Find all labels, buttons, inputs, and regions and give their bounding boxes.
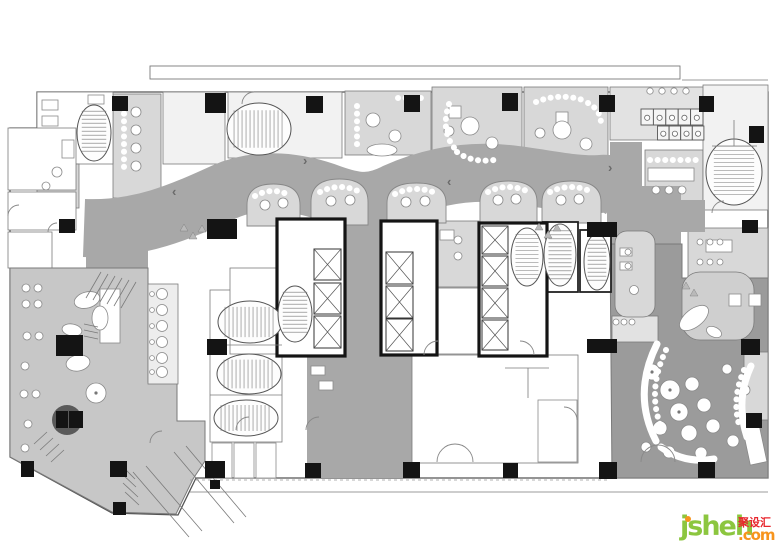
column [587,222,617,237]
toilet-fixture [694,115,699,120]
toilet-fixture [661,131,666,136]
table-round [260,200,270,210]
watermark-dot-icon [685,516,691,522]
column [113,502,126,515]
oval-stair [706,139,762,205]
table-round [326,196,336,206]
floor-plan-canvas: ‹››‹ [0,0,780,551]
table-round [32,390,40,398]
table-round [157,305,168,316]
oval-stair [278,286,312,342]
roof-setback-line [150,66,680,79]
column [502,93,518,111]
column [503,463,518,478]
table-round [34,284,42,292]
column [404,95,420,112]
table-round [22,284,30,292]
table-round [366,113,380,127]
table-round [454,236,462,244]
room [8,128,76,190]
table-round [461,117,479,135]
table-round [157,353,168,364]
toilet-fixture [669,115,674,120]
table-round [278,198,288,208]
table-round [629,319,635,325]
toilet-fixture [684,131,689,136]
column [21,461,34,477]
toilet-fixture [696,131,701,136]
table-round [150,324,155,329]
furniture [234,443,254,478]
table-round [157,337,168,348]
column [746,413,762,428]
table-round [150,356,155,361]
table-round [580,138,592,150]
room [615,231,655,317]
table-round [678,186,686,194]
column [599,462,617,479]
column [59,219,75,233]
table-round [131,143,141,153]
table-round [671,88,677,94]
room [612,316,658,342]
column [205,461,225,478]
column [741,339,760,355]
oval-stair [77,105,111,161]
table-round [681,425,697,441]
table-round [389,130,401,142]
table-round [131,161,141,171]
table-round [685,377,699,391]
column [112,96,128,111]
table-round [697,398,711,412]
oval-stair [584,234,610,290]
table-round [707,239,713,245]
oval-stair [218,301,282,343]
table-round [556,195,566,205]
table-round [697,259,703,265]
table-round [150,292,155,297]
table-round [35,332,43,340]
direction-arrow: ‹ [447,174,451,189]
table-round [157,321,168,332]
direction-arrow: › [303,153,307,168]
table-round [652,186,660,194]
column [306,96,323,113]
table-round [131,125,141,135]
room [8,232,52,268]
column [698,462,715,478]
table-round [157,289,168,300]
table-round [717,259,723,265]
table-round [52,167,62,177]
column [305,463,321,478]
oval-stair [214,400,278,436]
direction-arrow: ‹ [172,184,176,199]
table-round [420,196,430,206]
watermark-logo: jsheh 聚设汇 .com [680,512,780,550]
direction-arrow: › [608,160,612,175]
room [435,288,479,354]
table-round [625,263,631,269]
column [599,95,615,112]
furniture [319,381,333,390]
column [110,461,127,477]
table-round [157,367,168,378]
table-round [683,88,689,94]
table-round [42,182,50,190]
column [403,462,420,478]
room [688,228,768,278]
column [749,126,764,143]
table-round [630,286,639,295]
table-round [659,88,665,94]
table-round [722,364,732,374]
table-round [613,319,619,325]
table-round [345,195,355,205]
table-round [150,340,155,345]
furniture [449,106,461,118]
furniture [256,443,276,478]
table-round [150,370,155,375]
watermark-suffix-text: .com [738,526,775,544]
corridor-area [607,200,705,232]
table-round [553,121,571,139]
column [207,219,237,239]
table-round [493,195,503,205]
furniture [729,294,741,306]
toilet-fixture [672,131,677,136]
table-round [24,420,32,428]
table-oval [367,144,397,156]
column [69,411,83,428]
column [587,339,617,353]
table-round [511,194,521,204]
table-round [697,239,703,245]
oval-stair [217,354,281,394]
table-round [486,137,498,149]
table-round [131,107,141,117]
table-round [23,332,31,340]
table-center-dot [668,388,671,391]
table-round [621,319,627,325]
column [56,335,83,356]
table-round [706,419,720,433]
column [207,339,227,355]
table-round [647,88,653,94]
table-center-dot [94,391,97,394]
oval-stair [511,228,543,286]
toilet-fixture [645,115,650,120]
furniture [440,230,454,240]
table-round [150,308,155,313]
table-round [22,300,30,308]
furniture [88,95,104,104]
furniture [648,168,694,181]
toilet-fixture [682,115,687,120]
table-round [401,197,411,207]
table-round [454,252,462,260]
table-center-dot [650,370,653,373]
furniture [749,294,761,306]
floor-plan-page: ‹››‹ jsheh 聚设汇 .com [0,0,780,551]
table-round [727,435,739,447]
corridor-area [86,208,148,272]
table-round [20,390,28,398]
table-round [21,362,29,370]
table-round [707,259,713,265]
column [205,93,226,113]
table-round [625,249,631,255]
toilet-fixture [657,115,662,120]
furniture [62,140,74,158]
table-round [665,186,673,194]
column [210,480,220,489]
column [699,96,714,112]
column [742,220,758,233]
column [56,411,68,428]
table-round [34,300,42,308]
furniture [42,116,58,126]
furniture [311,366,325,375]
table-round [717,239,723,245]
table-center-dot [677,410,680,413]
table-round [21,444,29,452]
furniture [42,100,58,110]
table-round [574,194,584,204]
table-round [535,128,545,138]
oval-stair [227,103,291,155]
